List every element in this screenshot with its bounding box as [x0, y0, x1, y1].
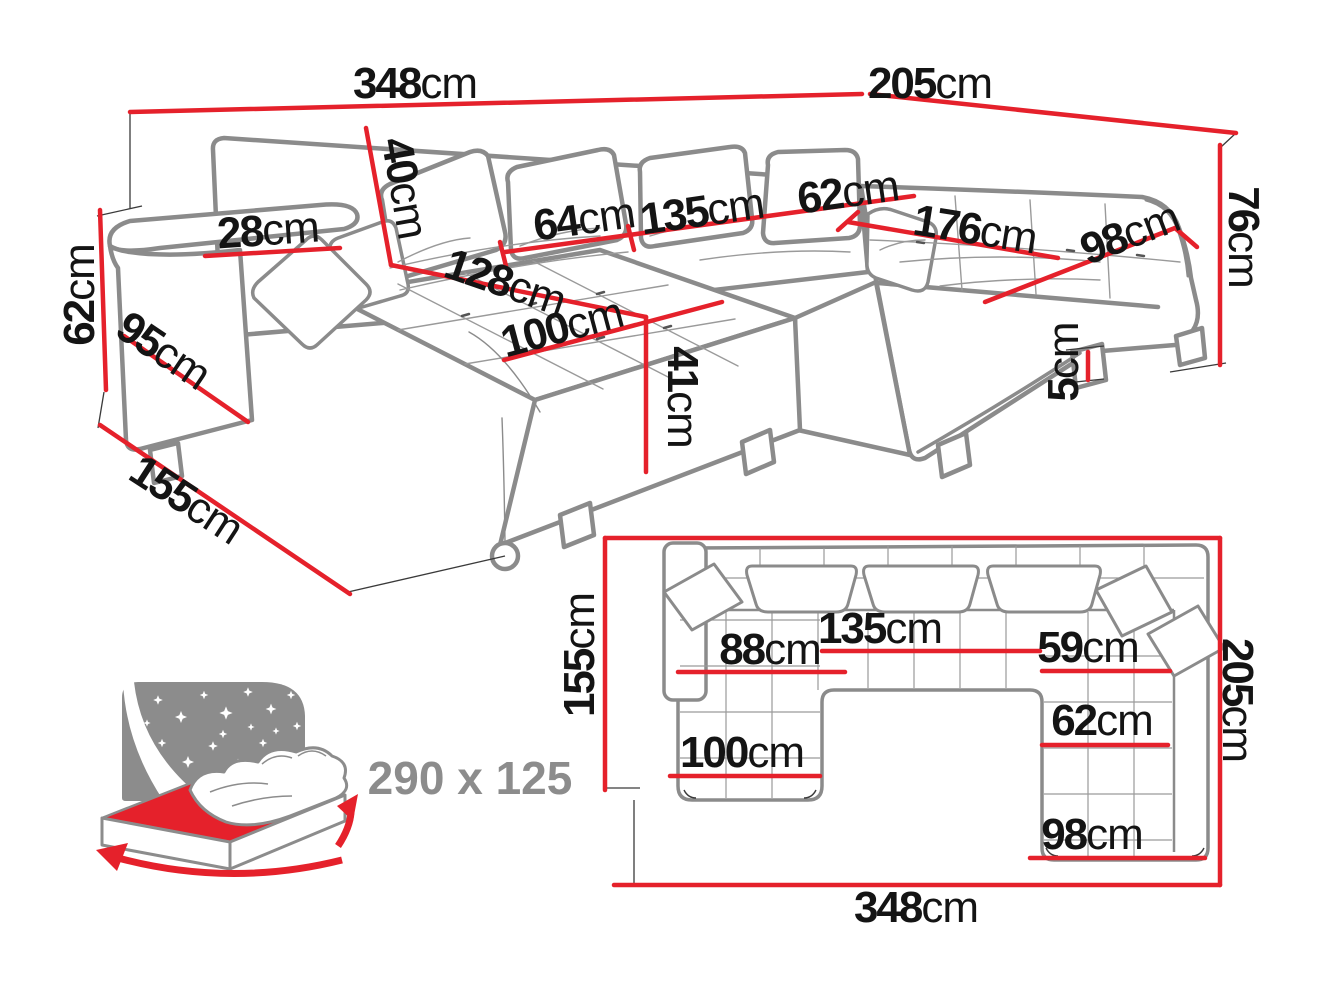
dim-value: 62 [1051, 696, 1096, 745]
dim-unit: cm [935, 59, 992, 108]
dim-unit: cm [977, 206, 1041, 263]
dim-value: 64 [530, 196, 581, 251]
dim-plan-total-width: 348cm [854, 886, 978, 930]
dim-value: 88 [719, 625, 764, 674]
dim-value: 176 [910, 196, 984, 255]
dim-value: 62 [55, 301, 104, 346]
sleeping-area-size-label: 290 x 125 [368, 755, 573, 801]
dim-unit: cm [55, 244, 104, 301]
dim-unit: cm [885, 604, 942, 653]
dim-unit: cm [575, 188, 638, 244]
dim-value: 76 [1219, 186, 1268, 231]
dim-plan-left-side-depth: 155cm [558, 593, 602, 717]
dim-plan-corner-seat-width: 59cm [1037, 626, 1139, 670]
dim-unit: cm [1082, 623, 1139, 672]
dim-unit: cm [1039, 322, 1088, 379]
sleeping-function-icon [96, 682, 358, 874]
dim-perspective-leg-height: 5cm [1042, 322, 1086, 401]
dim-value: 155 [555, 650, 604, 717]
dim-value: 135 [818, 604, 885, 653]
dim-value: 5 [1039, 379, 1088, 401]
plan-seat-cushion [988, 566, 1101, 612]
dim-unit: cm [260, 203, 320, 256]
dim-value: 205 [1213, 638, 1262, 705]
dim-value: 28 [216, 206, 264, 258]
dim-unit: cm [555, 593, 604, 650]
dim-unit: cm [1096, 696, 1153, 745]
diagram-page: 348cm 205cm 62cm 40cm 28cm 64cm 135cm 62… [0, 0, 1317, 988]
dim-unit: cm [764, 625, 821, 674]
sofa-foot [1176, 328, 1205, 365]
dim-plan-chaise-width: 100cm [680, 731, 804, 775]
dim-perspective-backrest-height: 76cm [1221, 186, 1265, 288]
dim-unit: cm [1213, 705, 1262, 762]
dim-value: 348 [854, 883, 921, 932]
dim-plan-right-side-depth: 205cm [1215, 638, 1259, 762]
dim-value: 59 [1037, 623, 1082, 672]
dim-perspective-total-back-width: 348cm [353, 62, 477, 106]
dim-value: 135 [637, 186, 711, 244]
dim-value: 98 [1041, 810, 1086, 859]
dim-unit: cm [420, 59, 477, 108]
dim-value: 205 [868, 59, 935, 108]
dim-plan-right-seat-width: 62cm [1051, 699, 1153, 743]
dim-perspective-right-side-width: 205cm [868, 62, 992, 106]
plan-construction-lines [605, 788, 640, 883]
dim-unit: cm [704, 179, 767, 235]
dim-value: 100 [680, 728, 747, 777]
dim-unit: cm [921, 883, 978, 932]
dim-perspective-armrest-height: 62cm [58, 244, 102, 346]
dim-unit: cm [379, 178, 437, 242]
dim-perspective-seat-height: 41cm [660, 346, 704, 448]
dim-value: 62 [794, 169, 845, 224]
dim-unit: cm [747, 728, 804, 777]
dim-unit: cm [1086, 810, 1143, 859]
dim-perspective-armrest-top-width: 28cm [216, 206, 320, 257]
dim-value: 348 [353, 59, 420, 108]
dim-unit: cm [1219, 231, 1268, 288]
dim-unit: cm [658, 391, 707, 448]
dim-plan-center-seat-width: 135cm [818, 607, 942, 651]
dim-plan-chaise-seat-width: 88cm [719, 628, 821, 672]
dim-plan-end-seat-width: 98cm [1041, 813, 1143, 857]
dim-line-348 [130, 94, 862, 112]
dim-value: 41 [658, 346, 707, 391]
dim-unit: cm [839, 161, 902, 217]
